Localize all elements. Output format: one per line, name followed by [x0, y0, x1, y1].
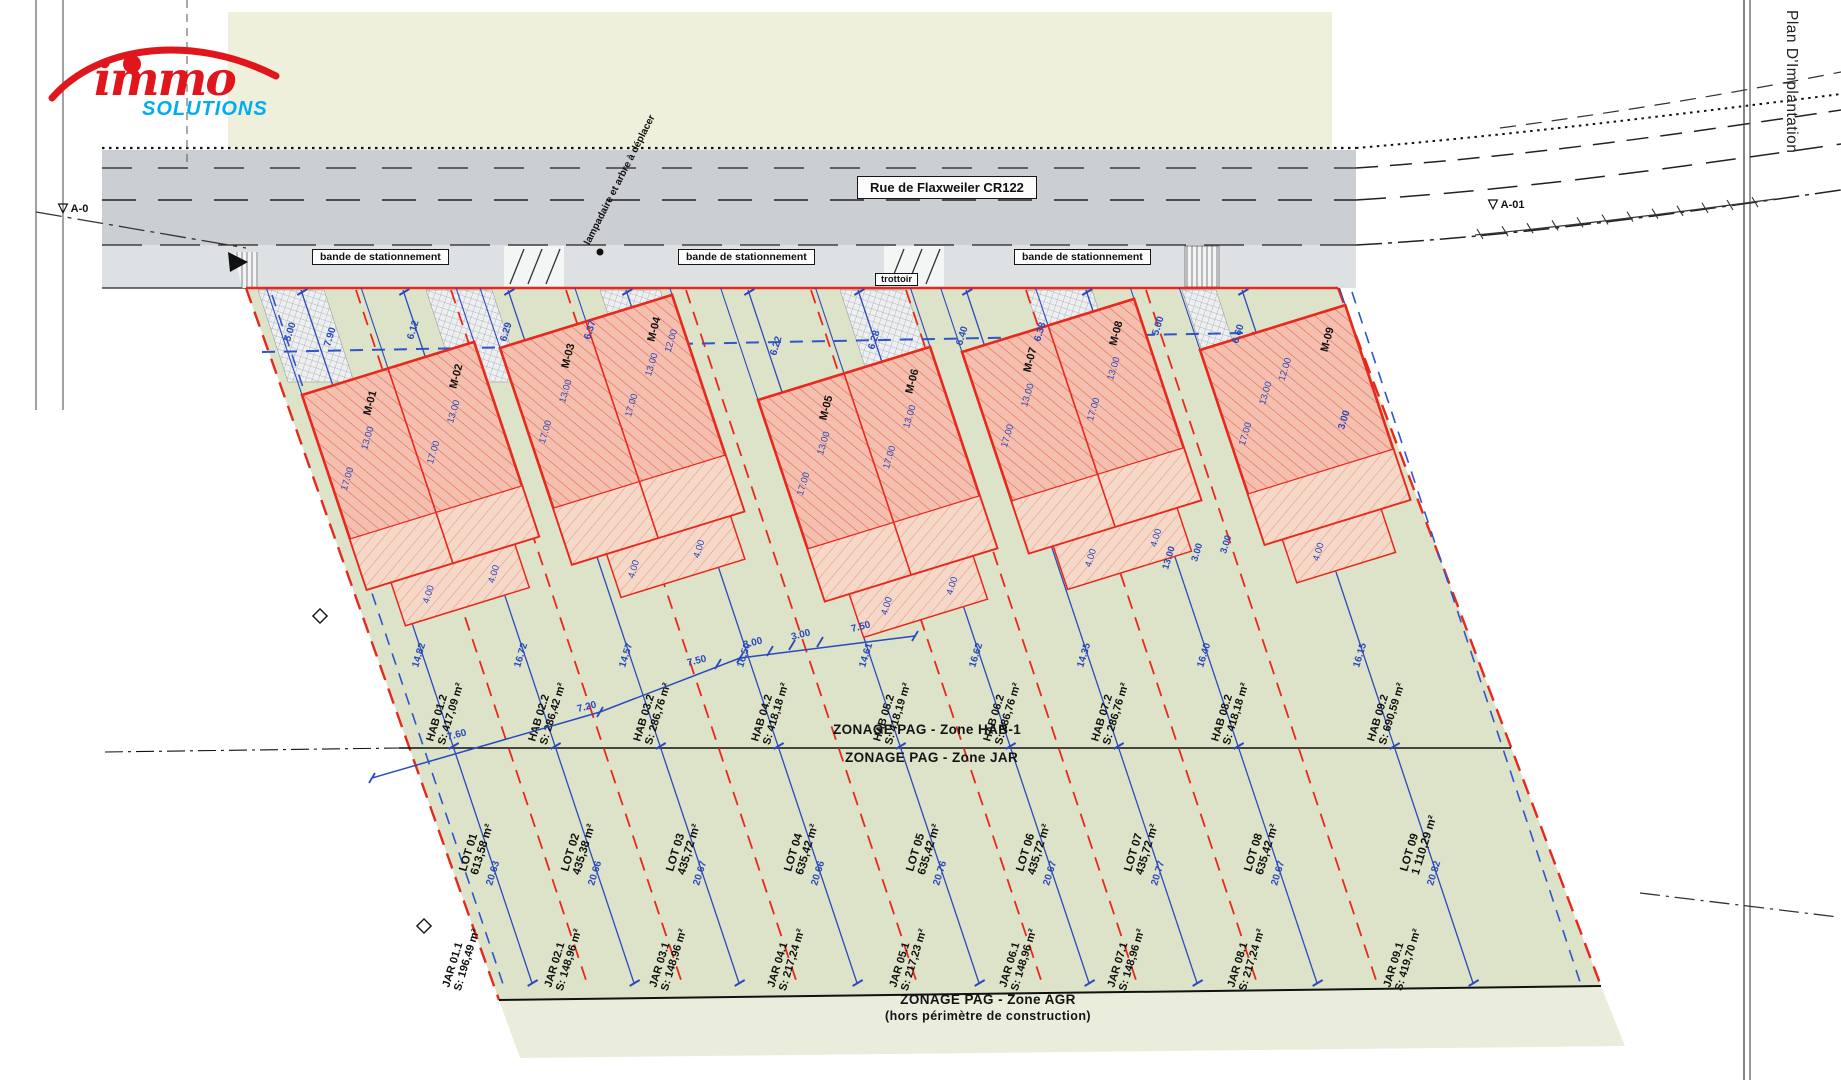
- section-marker-left-text: A-0: [71, 203, 89, 215]
- company-logo: immo SOLUTIONS: [44, 34, 294, 130]
- parking-strip-label-1: bande de stationnement: [312, 249, 449, 265]
- plan-title: Plan D'Implantation: [1782, 10, 1800, 153]
- sidewalk-label: trottoir: [875, 273, 918, 286]
- hatch-strip: [1185, 246, 1219, 287]
- street-band: [102, 150, 1356, 245]
- street-name-label: Rue de Flaxweiler CR122: [857, 176, 1037, 199]
- section-marker-right: ▽ A-01: [1488, 196, 1525, 212]
- driveway-gap: [504, 246, 564, 287]
- section-marker-right-text: A-01: [1501, 199, 1525, 211]
- triangle-icon: ▽: [58, 200, 68, 215]
- rail-tick: [1502, 226, 1508, 236]
- zoning-jar-label: ZONAGE PAG - Zone JAR: [845, 750, 1018, 765]
- rail-tick: [1652, 209, 1658, 219]
- zoning-agr-label: ZONAGE PAG - Zone AGR (hors périmètre de…: [818, 991, 1158, 1025]
- road-dash-curve: [1356, 110, 1841, 168]
- parking-strip-label-2: bande de stationnement: [678, 249, 815, 265]
- rail-tick: [1552, 220, 1558, 230]
- rail-tick: [1602, 215, 1608, 225]
- survey-point-icon: [417, 919, 431, 933]
- plan-sheet: 14.8220.63HAB 01.2S: 417,09 m²LOT 01613,…: [0, 0, 1841, 1080]
- survey-point-icon: [313, 609, 327, 623]
- zoning-hab-label: ZONAGE PAG - Zone HAB-1: [833, 722, 1021, 737]
- zone-line-extension: [105, 748, 399, 752]
- paper-area: [228, 12, 1332, 152]
- road-dashdot-curve: [1356, 190, 1841, 245]
- zoning-agr-line2: (hors périmètre de construction): [818, 1008, 1158, 1025]
- lamppost-icon: [597, 249, 604, 256]
- road-center-curve: [1356, 144, 1841, 200]
- site-plan-drawing: 14.8220.63HAB 01.2S: 417,09 m²LOT 01613,…: [0, 0, 1841, 1080]
- section-marker-left: ▽ A-0: [58, 200, 88, 216]
- rail-tick: [1527, 223, 1533, 233]
- zoning-agr-line1: ZONAGE PAG - Zone AGR: [818, 991, 1158, 1008]
- road-bottom-dashdot: [1640, 893, 1838, 917]
- jar-label: JAR 01.1S: 196,49 m²: [440, 924, 482, 993]
- triangle-icon: ▽: [1488, 196, 1498, 211]
- rail-tick: [1627, 212, 1633, 222]
- logo-solutions-text: SOLUTIONS: [142, 98, 268, 121]
- parking-strip-label-3: bande de stationnement: [1014, 249, 1151, 265]
